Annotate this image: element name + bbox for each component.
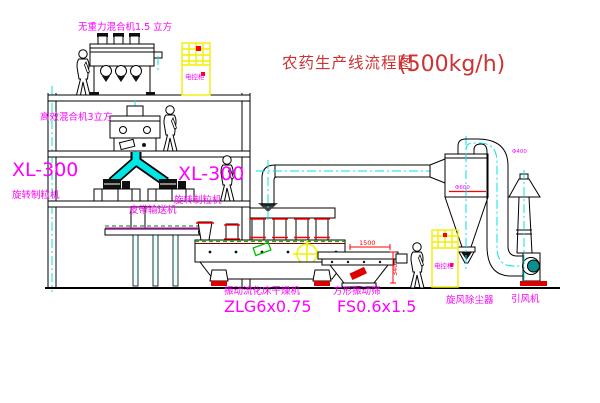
cyclone-inlet xyxy=(430,159,445,183)
diagram-capacity: (500kg/h) xyxy=(398,52,505,77)
fan-name-label: 引风机 xyxy=(511,293,540,305)
sieve-length-dim: 1500 xyxy=(359,239,376,247)
gravity-free-mixer xyxy=(90,33,162,95)
flow-diagram-canvas: 电控柜 xyxy=(0,0,600,403)
bellows-ports xyxy=(250,218,330,240)
control-cabinet-top: 电控柜 xyxy=(182,43,210,95)
sieve-height-dim: 340 xyxy=(391,264,399,276)
worker-ground xyxy=(411,243,425,288)
granulator-model-mid: XL-300 xyxy=(178,163,244,185)
belt-conveyor-label: 皮带输送机 xyxy=(129,204,177,216)
cabinet-label: 电控柜 xyxy=(434,261,454,270)
fluid-bed-dryer xyxy=(195,203,352,286)
fan-motor xyxy=(528,260,540,272)
granulator-name-left: 旋转制粒机 xyxy=(12,189,60,201)
granulator-name-mid: 旋转制粒机 xyxy=(174,194,222,206)
dryer-name-label: 振动流化床干燥机 xyxy=(224,285,301,297)
granulator-left xyxy=(94,179,140,201)
induced-draft-fan: Φ400 xyxy=(509,149,547,286)
worker-mid-floor xyxy=(164,106,178,151)
control-cabinet-ground: 电控柜 xyxy=(432,230,458,287)
granulator-model-left: XL-300 xyxy=(12,159,78,181)
cyclone-separator: Φ600 xyxy=(445,136,488,270)
floor-slab-top xyxy=(48,95,250,101)
floor-slab-mid xyxy=(48,151,250,157)
cyclone-diameter-label: Φ600 xyxy=(455,185,470,191)
gravity-free-mixer-label: 无重力混合机1.5 立方 xyxy=(78,21,172,33)
cyclone-name-label: 旋风除尘器 xyxy=(446,294,494,306)
diagram-title: 农药生产线流程图 xyxy=(282,54,414,72)
stack-diameter-label: Φ400 xyxy=(512,149,527,155)
fan-base xyxy=(520,281,547,286)
belt-conveyor xyxy=(105,226,206,286)
dryer-model-label: ZLG6x0.75 xyxy=(224,297,312,316)
cabinet-label: 电控柜 xyxy=(185,72,205,81)
high-efficiency-mixer-label: 高效混合机3立方 xyxy=(40,111,113,123)
sieve-name-label: 方形振动筛 xyxy=(333,285,381,297)
indicator-light xyxy=(196,46,201,51)
worker-top-floor xyxy=(77,50,91,95)
dryer-hood xyxy=(250,208,335,218)
sieve-model-label: FS0.6x1.5 xyxy=(337,297,416,316)
indicator-light xyxy=(443,233,447,237)
feed-hopper xyxy=(198,222,212,240)
